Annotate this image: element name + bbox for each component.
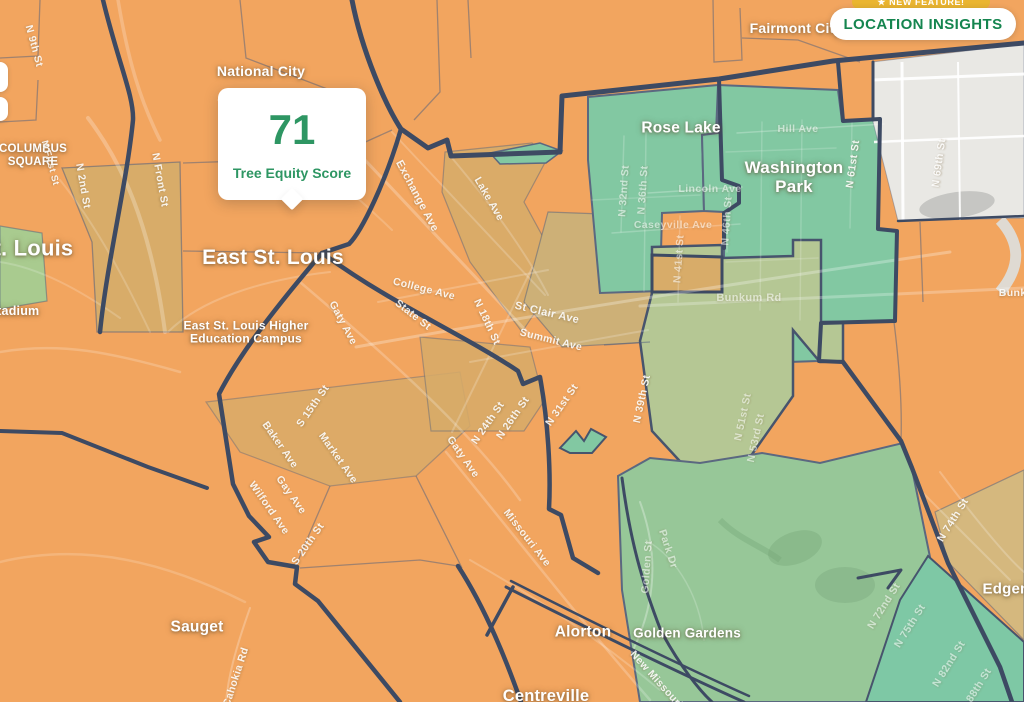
map-regions	[0, 0, 1024, 702]
location-insights-button[interactable]: LOCATION INSIGHTS	[830, 8, 1016, 40]
tree-equity-score-caption: Tree Equity Score	[233, 165, 351, 181]
tree-equity-popup: 71 Tree Equity Score	[218, 88, 366, 200]
tree-equity-score-value: 71	[269, 109, 316, 151]
tree-equity-map-screen: National CityEast St. LouisSt. LouisCOLU…	[0, 0, 1024, 702]
map-canvas[interactable]	[0, 0, 1024, 702]
map-control-button[interactable]	[0, 62, 8, 92]
